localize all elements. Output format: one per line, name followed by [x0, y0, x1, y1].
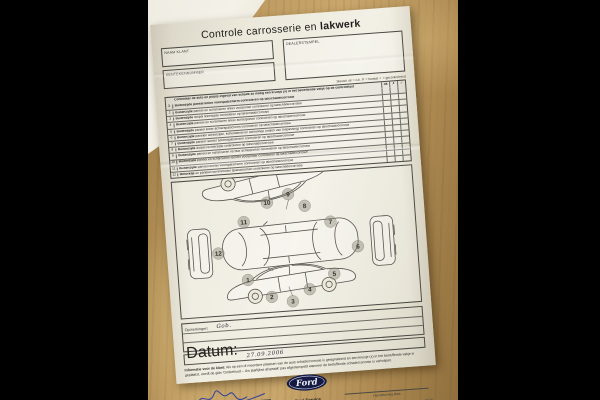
- ford-logo-block: Ford Ford Service: [277, 372, 337, 400]
- check-cell: [402, 155, 410, 161]
- check-cell: [402, 149, 410, 155]
- ford-service-label: Ford Service: [279, 395, 337, 400]
- advisor-signature-line: [186, 387, 271, 400]
- checklist-table: Controleer de auto en plaats ingeval van…: [164, 79, 411, 179]
- check-cell: [399, 106, 407, 112]
- advisor-signature-ink: [188, 382, 269, 400]
- check-cell: [397, 86, 405, 93]
- diagram-number-10: 10: [263, 200, 271, 208]
- ford-service-bold: Service: [305, 397, 321, 400]
- check-cell: [398, 93, 406, 99]
- photo-of-document: Controle carrosserie en lakwerk NAAM KLA…: [0, 0, 600, 400]
- check-cell: [402, 143, 410, 149]
- check-cell: [399, 112, 407, 118]
- checklist-header-num: [166, 101, 173, 102]
- field-dealerstempel: DEALERSTEMPEL: [283, 31, 406, 81]
- wooden-desk-background: Controle carrosserie en lakwerk NAAM KLA…: [148, 0, 458, 400]
- check-cell: [400, 118, 408, 124]
- check-cell: [401, 137, 409, 143]
- date-handwriting: 27.09.2006: [246, 350, 284, 360]
- ford-oval-text: Ford: [295, 378, 318, 390]
- date-label: Datum:: [186, 342, 239, 364]
- diagram-number-11: 11: [240, 219, 248, 227]
- field-naam-klant-label: NAAM KLANT: [162, 41, 272, 55]
- check-cell: [398, 100, 406, 106]
- diagram-number-12: 12: [215, 251, 223, 259]
- car-damage-diagram: 123456789101112: [171, 164, 422, 319]
- inspection-form: Controle carrosserie en lakwerk NAAM KLA…: [150, 6, 436, 384]
- check-cell: [400, 124, 408, 130]
- form-title-bold: lakwerk: [320, 18, 361, 33]
- ford-oval-logo-icon: Ford: [284, 372, 329, 393]
- car-line-drawings: 123456789101112: [172, 165, 421, 318]
- check-cell: [401, 130, 409, 136]
